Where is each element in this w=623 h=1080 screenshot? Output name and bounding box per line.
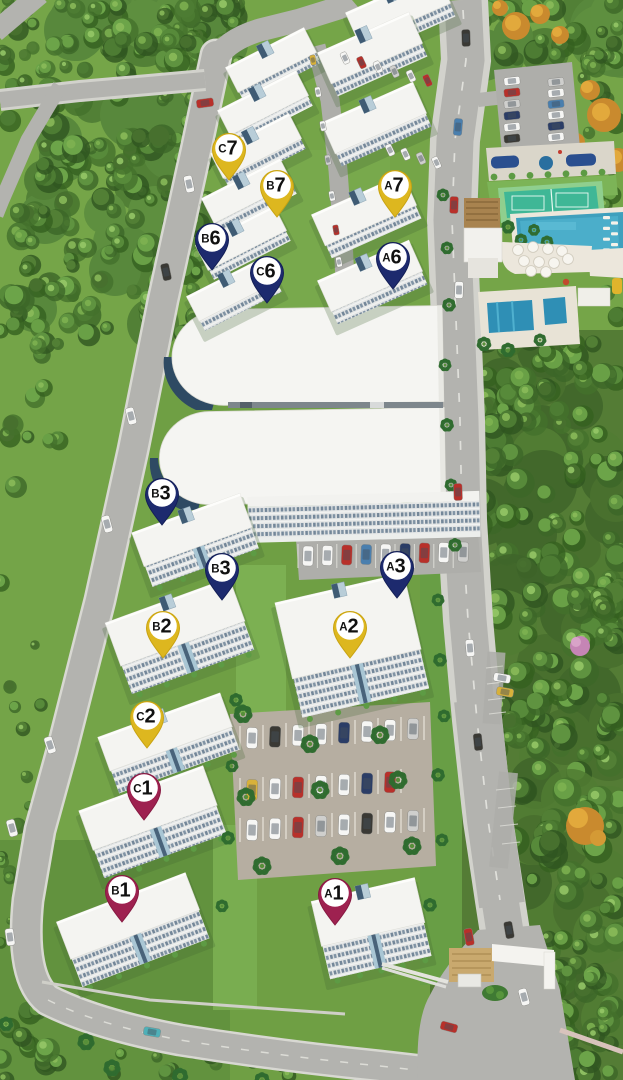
svg-text:B: B [152, 622, 160, 634]
svg-text:C: C [218, 144, 226, 156]
svg-text:7: 7 [227, 138, 238, 160]
svg-text:B: B [266, 181, 274, 193]
svg-text:7: 7 [275, 175, 286, 197]
svg-text:B: B [201, 234, 209, 246]
svg-text:3: 3 [160, 483, 171, 505]
svg-text:C: C [133, 784, 141, 796]
svg-text:A: A [324, 889, 332, 901]
svg-text:C: C [136, 712, 144, 724]
svg-text:C: C [256, 267, 264, 279]
svg-text:1: 1 [142, 778, 153, 800]
svg-text:1: 1 [120, 880, 131, 902]
svg-text:2: 2 [348, 616, 359, 638]
svg-text:7: 7 [393, 175, 404, 197]
svg-text:A: A [386, 562, 394, 574]
svg-text:B: B [111, 886, 119, 898]
svg-text:1: 1 [333, 883, 344, 905]
svg-text:2: 2 [145, 706, 156, 728]
svg-text:6: 6 [391, 247, 402, 269]
svg-text:A: A [339, 622, 347, 634]
svg-text:6: 6 [210, 228, 221, 250]
svg-text:B: B [151, 489, 159, 501]
svg-text:B: B [211, 564, 219, 576]
svg-text:A: A [384, 181, 392, 193]
svg-text:A: A [382, 253, 390, 265]
svg-text:3: 3 [395, 556, 406, 578]
svg-text:2: 2 [161, 616, 172, 638]
svg-text:6: 6 [265, 261, 276, 283]
svg-text:3: 3 [220, 558, 231, 580]
